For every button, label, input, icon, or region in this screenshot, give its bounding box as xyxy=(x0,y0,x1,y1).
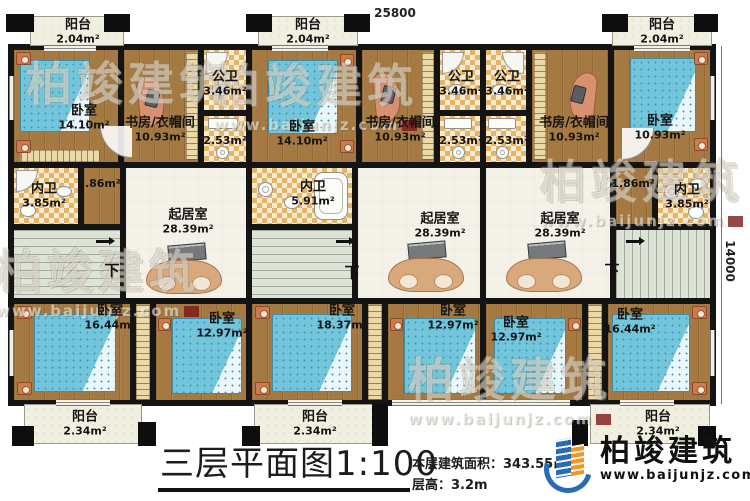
logo-brand-name: 柏竣建筑 xyxy=(600,435,750,468)
room-name: 公卫 xyxy=(203,71,246,86)
room-name: 卧室 xyxy=(276,121,327,136)
nightstand-icon xyxy=(568,318,581,331)
room-name: 卧室 xyxy=(196,313,247,328)
basin-icon xyxy=(452,146,465,159)
room-label: 阳台2.04m² xyxy=(286,19,329,46)
room-name: 卧室 xyxy=(316,305,367,320)
wardrobe-strip xyxy=(186,52,198,160)
wall-pier xyxy=(694,14,718,32)
basin-icon xyxy=(258,182,273,197)
room-area: 16.44m² xyxy=(84,319,135,331)
sofa-icon xyxy=(388,258,464,292)
room-area: 3.85m² xyxy=(665,198,708,210)
room-area: 2.53m² xyxy=(439,135,482,147)
room-area: 10.93m² xyxy=(365,131,435,143)
room-name: 阳台 xyxy=(640,19,683,34)
nightstand-icon xyxy=(340,54,354,67)
room-name: 公卫 xyxy=(485,71,528,86)
room-label: 公卫3.46m² xyxy=(439,71,482,98)
title-underline xyxy=(158,488,410,492)
room-name: 书房/衣帽间 xyxy=(125,117,195,132)
logo-tower-back-icon xyxy=(556,438,571,479)
room-area: 16.44m² xyxy=(604,323,655,335)
room-name: 起居室 xyxy=(414,213,465,228)
room-name: 卧室 xyxy=(84,305,135,320)
room-name: 阳台 xyxy=(56,19,99,34)
room-label: 公卫3.46m² xyxy=(485,71,528,98)
stairs-down-label: 下 xyxy=(344,262,359,283)
room-area: 10.93m² xyxy=(634,129,685,141)
wall-pier xyxy=(602,14,628,32)
nightstand-icon xyxy=(16,52,31,65)
room-label: 卧室14.10m² xyxy=(276,121,327,148)
room-name: 书房/衣帽间 xyxy=(539,117,609,132)
room-label: 卧室10.93m² xyxy=(634,115,685,142)
nightstand-icon xyxy=(16,140,31,153)
room-label: 书房/衣帽间10.93m² xyxy=(125,117,195,144)
window xyxy=(272,45,328,52)
room-label: 卧室16.44m² xyxy=(84,305,135,332)
logo-tower-front-icon xyxy=(571,444,584,476)
room-label: 2.53m² xyxy=(439,135,482,147)
room-label: 卧室18.37m² xyxy=(316,305,367,332)
room-area: 5.91m² xyxy=(291,195,334,207)
room-label: 卧室16.44m² xyxy=(604,309,655,336)
floor-area-label: 本层建筑面积： xyxy=(412,457,503,472)
room-name: 内卫 xyxy=(22,183,65,198)
sofa-icon xyxy=(506,258,582,292)
room-area: 2.04m² xyxy=(640,33,683,45)
room-label: 内卫5.91m² xyxy=(291,181,334,208)
wardrobe-strip xyxy=(20,150,100,162)
wall-pier xyxy=(372,404,388,446)
room-area: 1.86m² xyxy=(77,178,120,190)
nightstand-icon xyxy=(340,140,354,153)
room-label: 书房/衣帽间10.93m² xyxy=(365,117,435,144)
dimension-top: 25800 xyxy=(365,6,425,20)
room-area: 12.97m² xyxy=(490,331,541,343)
room-area: 3.85m² xyxy=(22,197,65,209)
room-area: 28.39m² xyxy=(414,227,465,239)
room-name: 阳台 xyxy=(636,411,679,426)
nightstand-icon xyxy=(694,138,708,151)
wardrobe-strip xyxy=(368,304,382,400)
brand-logo: 柏竣建筑 www.baijunjz.com xyxy=(544,435,750,491)
room-name: 卧室 xyxy=(490,317,541,332)
room-label: 1.86m² xyxy=(77,178,120,190)
room-area: 2.34m² xyxy=(293,425,336,437)
room-area: 28.39m² xyxy=(162,223,213,235)
room-name: 内卫 xyxy=(665,184,708,199)
room-area: 12.97m² xyxy=(427,319,478,331)
window xyxy=(9,330,14,376)
watermark-red-badge xyxy=(728,216,743,227)
room-label: 起居室28.39m² xyxy=(162,209,213,236)
room-name: 阳台 xyxy=(286,19,329,34)
window xyxy=(44,45,96,52)
wall-pier xyxy=(6,14,34,32)
window xyxy=(392,399,570,406)
floor-plan: 25800 14000 三层平面图1:100 本层建筑面积：343.55㎡ 层高… xyxy=(0,0,750,501)
sinkrect-icon xyxy=(444,118,472,129)
room-area: 2.53m² xyxy=(203,135,246,147)
room-name: 起居室 xyxy=(162,209,213,224)
dimension-right-value: 14000 xyxy=(723,240,737,282)
room-label: 起居室28.39m² xyxy=(414,213,465,240)
window xyxy=(288,399,342,406)
room-name: 起居室 xyxy=(534,213,585,228)
plan-title: 三层平面图1:100 xyxy=(160,447,438,481)
room-label: 卧室12.97m² xyxy=(490,317,541,344)
building-logo-icon xyxy=(544,435,594,491)
stair-direction-arrow-icon xyxy=(626,240,640,243)
sofa-icon xyxy=(146,260,222,294)
room-label: 阳台2.04m² xyxy=(56,19,99,46)
wall-pier xyxy=(138,422,156,446)
room-area: 18.37m² xyxy=(316,319,367,331)
room-name: 阳台 xyxy=(63,411,106,426)
nightstand-icon xyxy=(692,382,707,395)
room-name: 公卫 xyxy=(439,71,482,86)
wardrobe-strip xyxy=(588,304,602,400)
window xyxy=(9,76,14,120)
room-area: 12.97m² xyxy=(196,327,247,339)
sinkrect-icon xyxy=(208,118,238,129)
room-area: 3.46m² xyxy=(439,85,482,97)
nightstand-icon xyxy=(158,318,171,331)
room-area: 10.93m² xyxy=(125,131,195,143)
nightstand-icon xyxy=(255,306,270,319)
floor-height-value: 3.2m xyxy=(451,478,488,493)
dimension-right: 14000 xyxy=(723,231,737,291)
room-label: 公卫3.46m² xyxy=(203,71,246,98)
window xyxy=(620,399,674,406)
room-name: 卧室 xyxy=(604,309,655,324)
room-area: 1.86m² xyxy=(611,178,654,190)
room-label: 2.53m² xyxy=(203,135,246,147)
sinkrect-icon xyxy=(488,118,516,129)
room-label: 书房/衣帽间10.93m² xyxy=(539,117,609,144)
room-label: 内卫3.85m² xyxy=(22,183,65,210)
stair-direction-arrow-icon xyxy=(96,240,110,243)
room-label: 内卫3.85m² xyxy=(665,184,708,211)
room-area: 2.53m² xyxy=(485,135,528,147)
wardrobe-strip xyxy=(136,304,150,400)
room-area: 3.46m² xyxy=(485,85,528,97)
room-name: 卧室 xyxy=(634,115,685,130)
room-label: 阳台2.34m² xyxy=(63,411,106,438)
wall-pier xyxy=(242,426,260,446)
room-area: 2.04m² xyxy=(56,33,99,45)
room-label: 卧室12.97m² xyxy=(196,313,247,340)
floor-height-label: 层高： xyxy=(412,478,451,493)
room-area: 2.04m² xyxy=(286,33,329,45)
room-name: 卧室 xyxy=(58,105,109,120)
window xyxy=(56,399,110,406)
room-name: 阳台 xyxy=(293,411,336,426)
room-name: 书房/衣帽间 xyxy=(365,117,435,132)
wall-pier xyxy=(104,14,130,32)
room-area: 28.39m² xyxy=(534,227,585,239)
nightstand-icon xyxy=(694,52,708,65)
room-area: 14.10m² xyxy=(58,119,109,131)
room-label: 2.53m² xyxy=(485,135,528,147)
stairs-down-label: 下 xyxy=(104,260,119,281)
nightstand-icon xyxy=(255,382,270,395)
wardrobe-strip xyxy=(422,52,434,160)
nightstand-icon xyxy=(17,382,32,395)
nightstand-icon xyxy=(390,318,403,331)
wall-pier xyxy=(12,426,34,446)
room-label: 阳台2.34m² xyxy=(293,411,336,438)
room-area: 3.46m² xyxy=(203,85,246,97)
plan-title-text: 三层平面图1:100 xyxy=(160,444,438,484)
wall-pier xyxy=(246,14,272,32)
room-area: 10.93m² xyxy=(539,131,609,143)
window xyxy=(710,76,715,120)
basin-icon xyxy=(496,146,509,159)
room-name: 卧室 xyxy=(427,305,478,320)
room-label: 卧室12.97m² xyxy=(427,305,478,332)
stair-direction-arrow-icon xyxy=(336,240,350,243)
dimension-top-value: 25800 xyxy=(374,6,416,20)
room-label: 卧室14.10m² xyxy=(58,105,109,132)
logo-website-url: www.baijunjz.com xyxy=(600,468,750,483)
basin-icon xyxy=(216,146,229,159)
dimension-right-line xyxy=(721,46,722,404)
logo-texts: 柏竣建筑 www.baijunjz.com xyxy=(600,435,750,483)
room-label: 阳台2.04m² xyxy=(640,19,683,46)
room-area: 2.34m² xyxy=(63,425,106,437)
room-label: 1.86m² xyxy=(611,178,654,190)
nightstand-icon xyxy=(17,306,32,319)
wardrobe-strip xyxy=(534,52,546,160)
nightstand-icon xyxy=(692,306,707,319)
window xyxy=(634,45,690,52)
stairs-down-label: 下 xyxy=(604,260,619,281)
room-name: 内卫 xyxy=(291,181,334,196)
room-label: 起居室28.39m² xyxy=(534,213,585,240)
window xyxy=(710,330,715,376)
room-area: 14.10m² xyxy=(276,135,327,147)
